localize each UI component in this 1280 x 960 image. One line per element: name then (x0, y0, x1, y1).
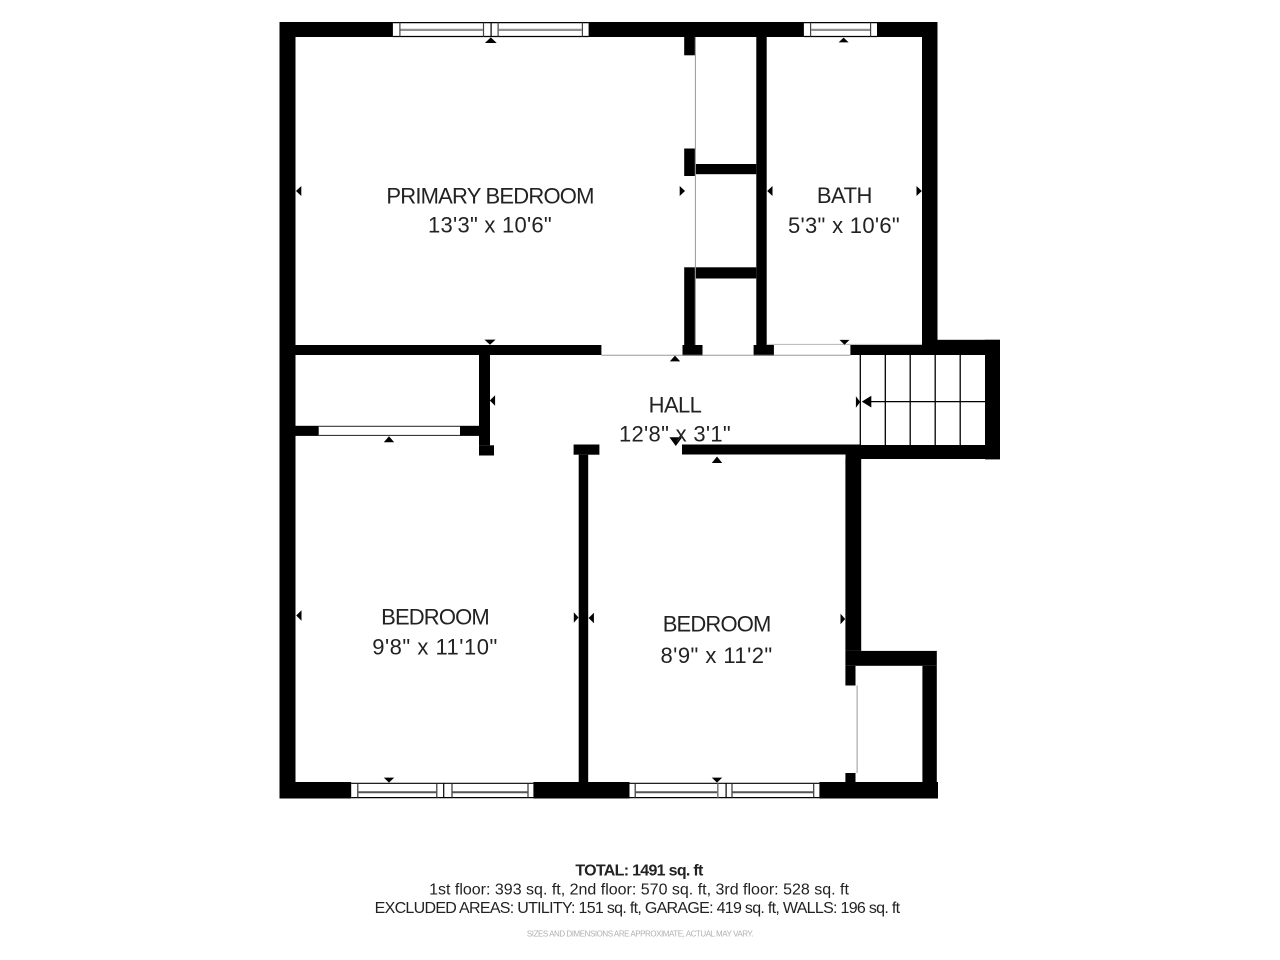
svg-text:8'9" x 11'2": 8'9" x 11'2" (660, 643, 772, 668)
svg-text:1st floor: 393 sq. ft, 2nd flo: 1st floor: 393 sq. ft, 2nd floor: 570 sq… (429, 882, 849, 899)
svg-text:EXCLUDED AREAS: UTILITY: 151 s: EXCLUDED AREAS: UTILITY: 151 sq. ft, GAR… (375, 900, 901, 917)
svg-text:BEDROOM: BEDROOM (663, 612, 771, 637)
svg-text:13'3" x 10'6": 13'3" x 10'6" (428, 213, 552, 238)
svg-text:5'3" x 10'6": 5'3" x 10'6" (788, 213, 900, 238)
svg-text:PRIMARY BEDROOM: PRIMARY BEDROOM (386, 184, 593, 209)
svg-text:BATH: BATH (817, 183, 872, 208)
svg-text:HALL: HALL (649, 393, 702, 418)
svg-text:SIZES AND DIMENSIONS ARE APPRO: SIZES AND DIMENSIONS ARE APPROXIMATE, AC… (527, 929, 754, 938)
svg-text:TOTAL: 1491 sq. ft: TOTAL: 1491 sq. ft (575, 863, 704, 880)
svg-text:9'8" x 11'10": 9'8" x 11'10" (372, 635, 498, 660)
svg-text:12'8" x 3'1": 12'8" x 3'1" (619, 422, 731, 447)
svg-text:BEDROOM: BEDROOM (381, 605, 489, 630)
